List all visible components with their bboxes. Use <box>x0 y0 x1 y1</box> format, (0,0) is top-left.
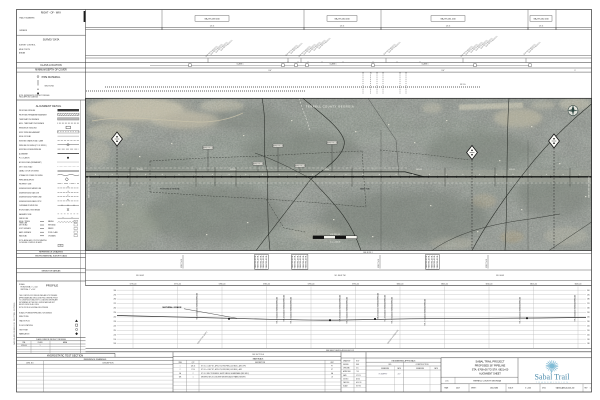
svg-text:180: 180 <box>114 343 117 345</box>
svg-text:DESCRIPTION: DESCRIPTION <box>103 362 115 364</box>
svg-text:DWG. NO.: DWG. NO. <box>26 362 34 364</box>
svg-text:6795+00: 6795+00 <box>323 169 329 171</box>
svg-text:36: 36 <box>399 73 401 75</box>
svg-text:36: 36 <box>405 73 407 75</box>
svg-text:290: 290 <box>114 294 117 296</box>
svg-text:AREAS: AREAS <box>19 52 26 55</box>
svg-text:SURVEY CONTROL: SURVEY CONTROL <box>19 45 36 47</box>
svg-text:STA 6781+12 WL: STA 6781+12 WL <box>291 255 294 268</box>
svg-text:PROPERTY LINE: PROPERTY LINE <box>19 184 31 186</box>
svg-text:6805+00: 6805+00 <box>416 169 422 171</box>
svg-text:GA3150-AS3-00-0001-130 PLOTT: GA3150-AS3-00-0001-130 PLOTTED: 2/27/201… <box>13 303 16 345</box>
svg-text:200: 200 <box>114 334 117 336</box>
svg-text:Sabal Trail: Sabal Trail <box>535 373 571 382</box>
svg-text:SHEET:: SHEET: <box>471 388 477 390</box>
svg-text:523.18: 523.18 <box>210 26 214 28</box>
svg-text:DLC: DLC <box>356 368 359 370</box>
svg-text:240: 240 <box>114 317 117 319</box>
svg-text:PIPE MATERIAL: PIPE MATERIAL <box>42 76 61 79</box>
svg-text:STA 6781+12 WL: STA 6781+12 WL <box>425 255 428 268</box>
svg-text:NOTED: NOTED <box>356 386 361 388</box>
svg-text:FT: FT <box>331 369 333 371</box>
svg-text:UNDERGROUND FIBER OPTIC: UNDERGROUND FIBER OPTIC <box>19 201 42 203</box>
svg-text:DIRECTIONS: DIRECTIONS <box>19 316 29 318</box>
svg-text:6795+00: 6795+00 <box>352 283 359 285</box>
svg-text:CLASS 1: CLASS 1 <box>422 63 429 66</box>
svg-text:STA 6781+12 WL: STA 6781+12 WL <box>428 255 431 268</box>
svg-text:FT: FT <box>331 366 333 368</box>
svg-text:6768+00: 6768+00 <box>21 345 27 347</box>
svg-text:LS: LS <box>331 376 333 378</box>
svg-text:MILE POSTS: MILE POSTS <box>19 49 31 51</box>
svg-text:6780+00: 6780+00 <box>219 283 226 285</box>
svg-text:G: G <box>67 191 68 193</box>
svg-text:220: 220 <box>114 325 117 327</box>
svg-text:STA 6781+12 WL: STA 6781+12 WL <box>262 255 265 268</box>
svg-text:36: 36 <box>362 73 364 75</box>
svg-text:ALIGNMENT SHEET: ALIGNMENT SHEET <box>479 373 501 376</box>
svg-text:210: 210 <box>587 330 590 332</box>
svg-text:GA-TE-059.000: GA-TE-059.000 <box>204 17 220 20</box>
svg-text:ALIGNMENT DETAIL: ALIGNMENT DETAIL <box>36 104 62 108</box>
svg-text:STA 6781+12 WL: STA 6781+12 WL <box>305 255 308 268</box>
svg-text:REFERENCE DRAWING: REFERENCE DRAWING <box>39 251 63 254</box>
svg-text:TDS: TDS <box>356 371 359 373</box>
svg-text:STA 6781+12 WL: STA 6781+12 WL <box>302 255 305 268</box>
svg-text:HYDROSTATIC TEST SECTION: HYDROSTATIC TEST SECTION <box>47 355 84 358</box>
svg-text:190: 190 <box>587 339 590 341</box>
svg-text:0 250 500: 0 250 500 1,000 <box>330 234 340 236</box>
svg-text:2/27: 2/27 <box>398 374 401 376</box>
svg-text:GA-TE-061.000: GA-TE-061.000 <box>440 17 456 20</box>
svg-text:270: 270 <box>114 303 117 305</box>
svg-text:LOC:: LOC: <box>445 380 449 382</box>
svg-text:523.18: 523.18 <box>446 26 450 28</box>
svg-text:STA 6781+12 WL: STA 6781+12 WL <box>259 255 262 268</box>
svg-text:GA-TE-060.000: GA-TE-060.000 <box>334 17 350 20</box>
svg-text:280: 280 <box>114 299 117 301</box>
svg-text:526.13: 526.13 <box>191 366 195 368</box>
svg-text:6820+00: 6820+00 <box>575 283 582 285</box>
svg-text:SURVEY DATA: SURVEY DATA <box>43 38 60 41</box>
svg-text:6790+00: 6790+00 <box>308 283 315 285</box>
svg-text:STA 6781+12 WL: STA 6781+12 WL <box>299 255 302 268</box>
svg-text:PROPOSED 36" PIPELINE: PROPOSED 36" PIPELINE <box>160 189 179 191</box>
svg-text:CLASS LOCATION: CLASS LOCATION <box>40 64 62 67</box>
svg-text:UNDERGROUND POWER LINE: UNDERGROUND POWER LINE <box>19 197 42 199</box>
svg-text:RHB: RHB <box>356 364 359 366</box>
svg-text:6805+00: 6805+00 <box>441 283 448 285</box>
svg-text:6785+00: 6785+00 <box>263 283 270 285</box>
svg-text:SECTIONS: SECTIONS <box>45 85 55 87</box>
svg-text:130 of 486: 130 of 486 <box>490 388 498 390</box>
svg-text:EDGE / TREES: EDGE / TREES <box>19 221 30 223</box>
svg-text:36: 36 <box>376 73 378 75</box>
svg-text:GA-TE-062.000: GA-TE-062.000 <box>533 17 549 20</box>
svg-text:280: 280 <box>587 299 590 301</box>
svg-text:3'-0": 3'-0" <box>441 70 445 72</box>
svg-text:17.50: 17.50 <box>191 369 195 371</box>
svg-text:6770+00: 6770+00 <box>130 283 137 285</box>
svg-text:SABAL TRAIL PROJECT: SABAL TRAIL PROJECT <box>475 359 504 363</box>
svg-text:SCALE:: SCALE: <box>19 283 26 286</box>
svg-text:STA 6781+12 WL: STA 6781+12 WL <box>265 255 268 268</box>
svg-text:MINIMUM DEPTH OF COVER: MINIMUM DEPTH OF COVER <box>35 70 67 72</box>
svg-text:PIPELINE CROSSING (PT. OF INTE: PIPELINE CROSSING (PT. OF INTER.) <box>19 145 47 147</box>
svg-text:220: 220 <box>587 325 590 327</box>
svg-text:STA 6781+12 WL: STA 6781+12 WL <box>296 255 299 268</box>
svg-text:260: 260 <box>114 308 117 310</box>
svg-text:RIGHT - OF - WAY: RIGHT - OF - WAY <box>41 12 62 15</box>
svg-text:CLASS 1: CLASS 1 <box>237 63 244 66</box>
svg-text:SO. 84-02 734: SO. 84-02 734 <box>335 275 346 277</box>
svg-text:1" = 500': 1" = 500' <box>525 388 532 390</box>
svg-text:CLASS 1: CLASS 1 <box>330 63 337 66</box>
svg-text:PROFILE: PROFILE <box>46 284 58 288</box>
svg-text:3'-0": 3'-0" <box>268 70 272 72</box>
svg-text:MATERIALS: MATERIALS <box>253 357 264 360</box>
svg-text:SENSITIVE AREAS: SENSITIVE AREAS <box>42 270 61 273</box>
svg-text:230: 230 <box>114 321 117 323</box>
svg-text:EXISTING FOREIGN PIPELINE: EXISTING FOREIGN PIPELINE <box>19 149 41 151</box>
svg-text:DWG.: DWG. <box>542 388 547 390</box>
svg-text:6815+00: 6815+00 <box>530 283 537 285</box>
svg-text:STA 6781+12 WL: STA 6781+12 WL <box>433 255 436 268</box>
svg-text:STA. 6768+00 TO STA. 6821+00: STA. 6768+00 TO STA. 6821+00 <box>472 369 509 372</box>
svg-text:190: 190 <box>114 339 117 341</box>
svg-text:2017: 2017 <box>456 388 460 390</box>
svg-text:36" O.D.: 36" O.D. <box>460 84 467 86</box>
svg-text:TRACT NUMBERS: TRACT NUMBERS <box>19 17 35 20</box>
svg-text:290: 290 <box>587 294 590 296</box>
svg-text:STA 6781+12 WL: STA 6781+12 WL <box>294 255 297 268</box>
svg-text:PROPOSED 36" PIPELINE: PROPOSED 36" PIPELINE <box>475 364 506 367</box>
svg-text:250: 250 <box>587 312 590 314</box>
svg-text:T R A N S M I S S I O N: T R A N S M I S S I O N <box>536 381 569 384</box>
svg-text:NO. 84-02: NO. 84-02 <box>136 275 144 277</box>
svg-text:523.18: 523.18 <box>340 26 344 28</box>
svg-text:OWNERS: OWNERS <box>19 30 28 32</box>
svg-text:6775+00: 6775+00 <box>137 169 143 171</box>
svg-text:36: 36 <box>370 73 372 75</box>
svg-text:1 in = 500 ft: 1 in = 500 ft <box>330 241 341 244</box>
svg-text:FENCE LINE: FENCE LINE <box>19 218 28 220</box>
svg-text:TERRELL COUNTY GEORGIA: TERRELL COUNTY GEORGIA <box>306 105 354 109</box>
svg-text:260: 260 <box>587 308 590 310</box>
svg-text:250: 250 <box>114 312 117 314</box>
svg-text:26: 26 <box>60 245 62 247</box>
svg-text:REFERENCE DRAWINGS: REFERENCE DRAWINGS <box>84 358 107 361</box>
svg-text:200: 200 <box>587 334 590 336</box>
svg-text:6785+00: 6785+00 <box>230 169 236 171</box>
svg-text:JOB NO.: JOB NO. <box>343 378 349 380</box>
svg-text:STA 6781+12 WL: STA 6781+12 WL <box>430 255 433 268</box>
svg-text:523.18: 523.18 <box>539 26 543 28</box>
svg-text:TEST POINT: TEST POINT <box>19 330 28 332</box>
svg-text:PROPOSED PIPELINE: PROPOSED PIPELINE <box>19 110 35 112</box>
svg-text:STA 6781+12 WL: STA 6781+12 WL <box>257 255 260 268</box>
svg-text:SEE NOTE 1: SEE NOTE 1 <box>363 252 373 254</box>
svg-text:WB: WB <box>179 376 181 378</box>
svg-text:TERRELL COUNTY GEORGIA: TERRELL COUNTY GEORGIA <box>473 379 501 382</box>
svg-text:6815+00: 6815+00 <box>509 169 515 171</box>
svg-text:STA 6781+12 WL: STA 6781+12 WL <box>436 255 439 268</box>
svg-text:6800+00: 6800+00 <box>397 283 404 285</box>
svg-text:6810+00: 6810+00 <box>486 283 493 285</box>
svg-text:NATURAL GRADE: NATURAL GRADE <box>163 306 182 309</box>
svg-text:230: 230 <box>587 321 590 323</box>
svg-text:MATCH LINE STA. 6821+00: MATCH LINE STA. 6821+00 <box>588 177 591 198</box>
svg-text:270: 270 <box>587 303 590 305</box>
svg-text:DESIGN: DESIGN <box>343 364 348 366</box>
svg-text:210: 210 <box>114 330 117 332</box>
svg-text:36: 36 <box>382 73 384 75</box>
svg-text:RESIDENCE / BUILDING: RESIDENCE / BUILDING <box>19 127 37 129</box>
svg-text:240: 240 <box>587 317 590 319</box>
svg-text:PIPELINE MILEPOST: PIPELINE MILEPOST <box>19 179 34 181</box>
svg-text:MATCH LINE STA. 6768+00: MATCH LINE STA. 6768+00 <box>88 177 91 198</box>
svg-text:NO. 84-03: NO. 84-03 <box>496 275 504 277</box>
svg-text:STA 6781+12 WL: STA 6781+12 WL <box>254 255 257 268</box>
svg-text:R. MURPHY: R. MURPHY <box>379 374 387 376</box>
svg-text:ENVIRONMENTAL SURVEY DATA: ENVIRONMENTAL SURVEY DATA <box>35 255 67 258</box>
svg-text:180: 180 <box>587 343 590 345</box>
svg-text:2/27/16: 2/27/16 <box>356 375 361 377</box>
svg-text:P: P <box>68 195 69 197</box>
svg-text:300: 300 <box>114 290 117 292</box>
svg-text:300: 300 <box>587 290 590 292</box>
svg-text:ENGINEERING APPROVALS: ENGINEERING APPROVALS <box>392 359 417 362</box>
svg-text:CHECKED: CHECKED <box>343 368 350 370</box>
svg-text:6775+00: 6775+00 <box>174 283 181 285</box>
